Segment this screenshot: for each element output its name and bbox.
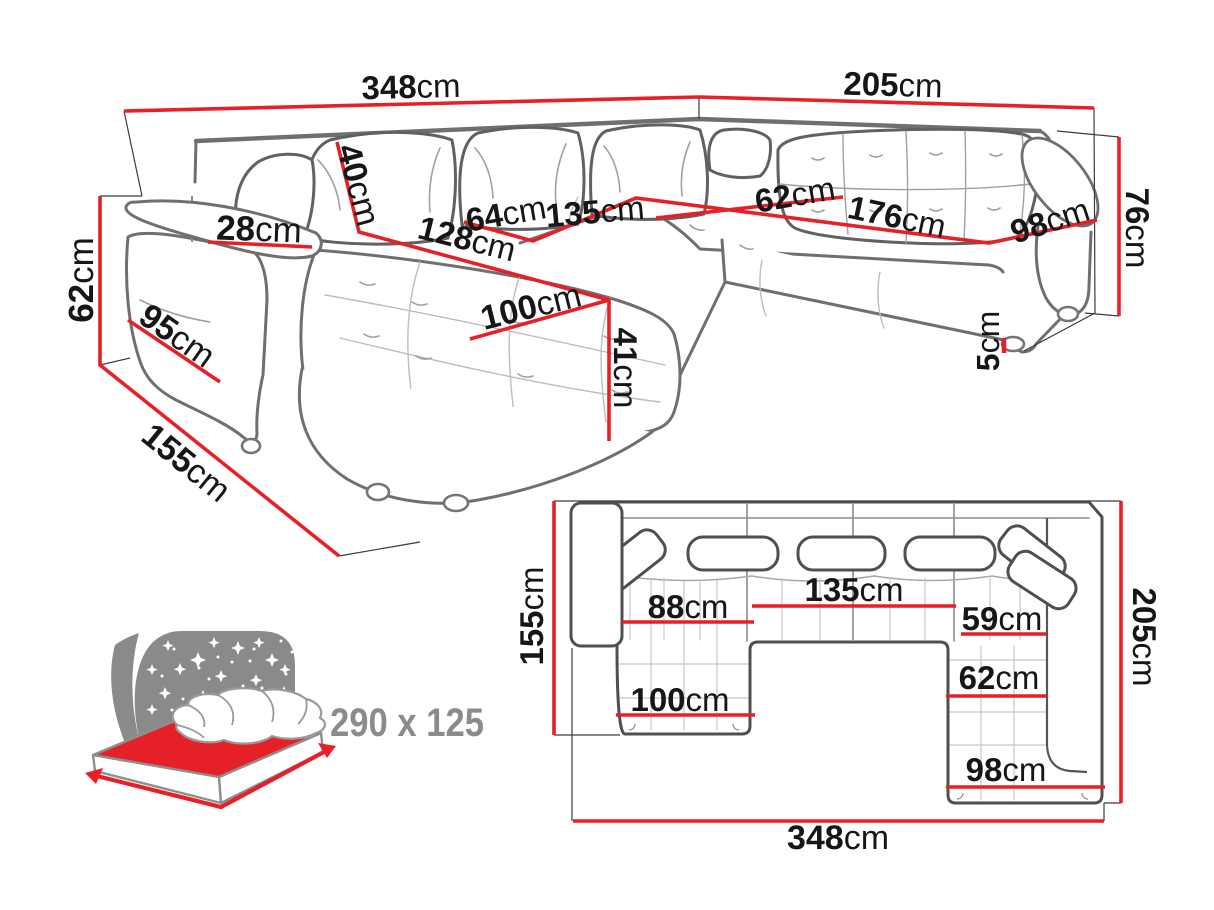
svg-text:135cm: 135cm [804,571,903,608]
svg-text:100cm: 100cm [630,681,729,718]
svg-text:88cm: 88cm [648,588,729,625]
svg-text:5cm: 5cm [970,311,1006,371]
svg-text:205cm: 205cm [843,65,943,105]
svg-text:41cm: 41cm [607,328,644,409]
svg-text:348cm: 348cm [361,67,461,106]
svg-text:348cm: 348cm [787,819,889,857]
svg-text:205cm: 205cm [1126,587,1163,686]
svg-text:155cm: 155cm [513,566,550,665]
svg-text:62cm: 62cm [62,237,101,323]
svg-text:28cm: 28cm [216,209,303,251]
svg-text:62cm: 62cm [959,659,1040,696]
svg-text:59cm: 59cm [962,600,1043,637]
svg-text:290 x 125: 290 x 125 [330,701,484,745]
svg-text:76cm: 76cm [1119,188,1156,269]
svg-text:98cm: 98cm [966,751,1047,788]
